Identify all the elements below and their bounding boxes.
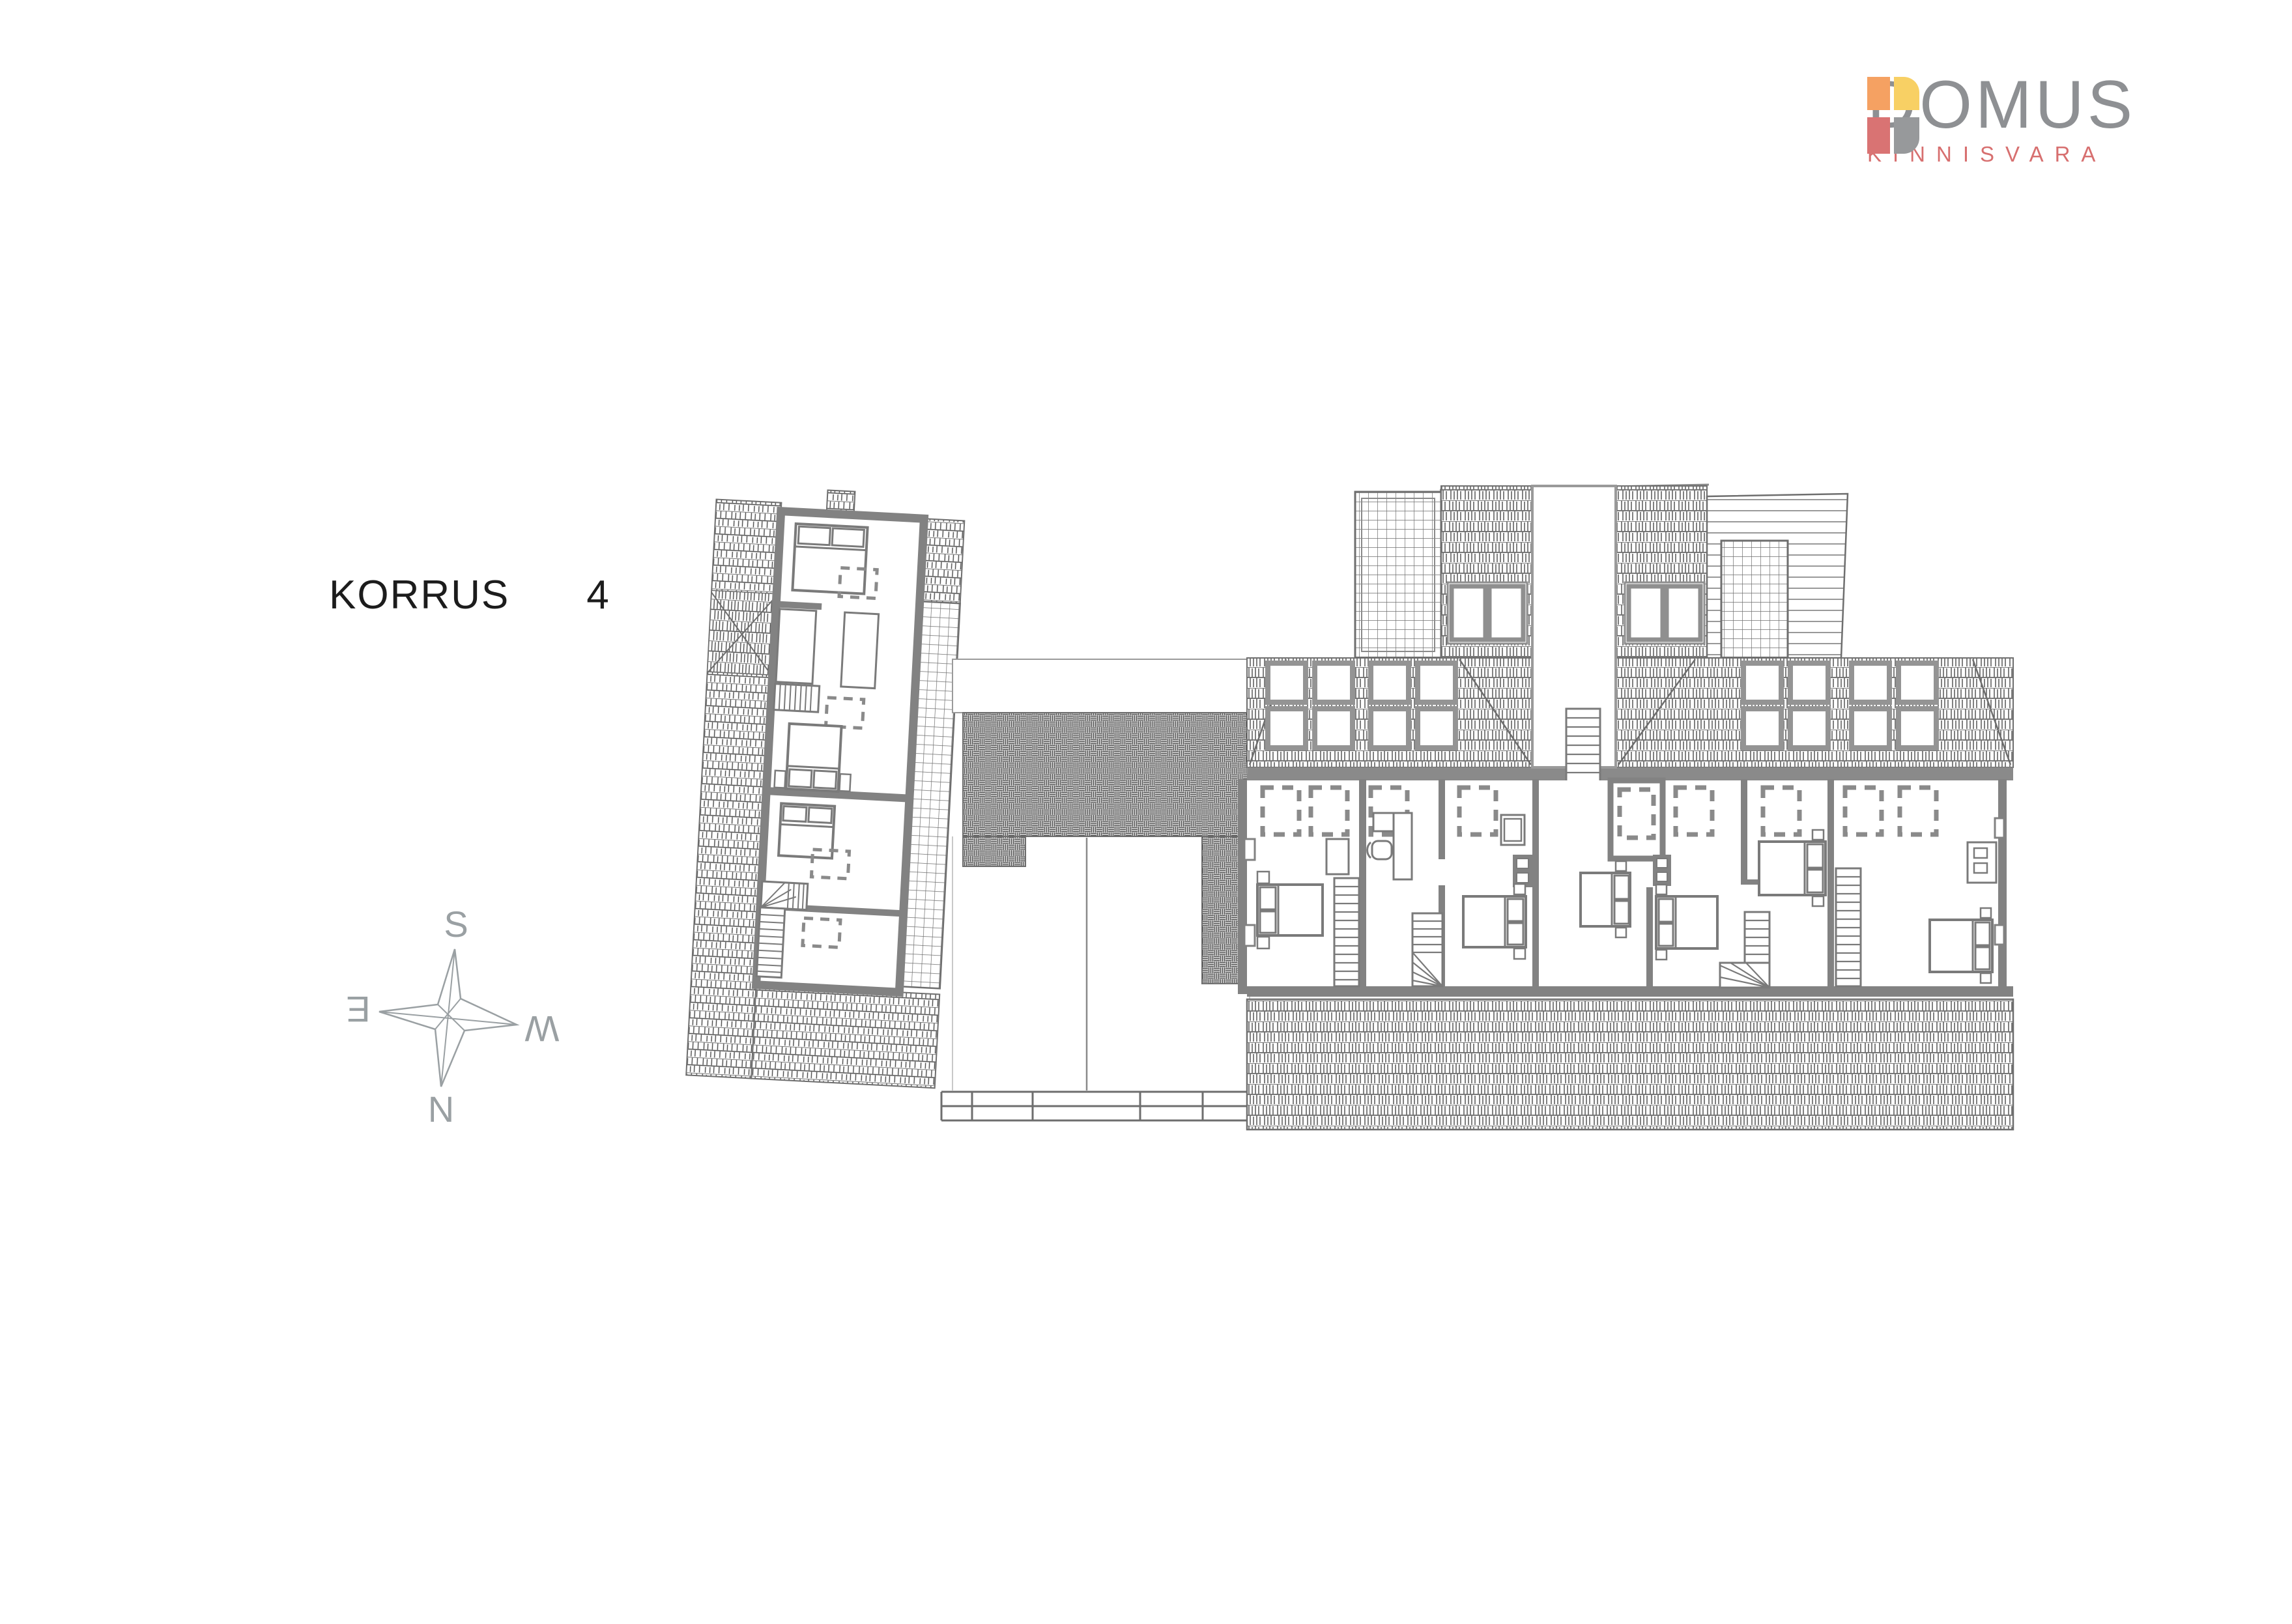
bed	[779, 803, 835, 858]
staircase	[774, 684, 820, 713]
divider-wall	[1439, 779, 1445, 859]
bed	[1759, 842, 1826, 895]
winder-staircase	[1412, 913, 1442, 986]
staircase	[1836, 868, 1861, 986]
armchair	[1501, 815, 1525, 845]
nightstand	[1981, 908, 1991, 918]
nightstand	[1981, 973, 1991, 983]
apartments	[1238, 779, 2013, 997]
nightstand	[1656, 950, 1667, 960]
south-wall	[1247, 986, 2013, 997]
nightstand	[1257, 937, 1269, 948]
nightstand	[1257, 872, 1269, 883]
compass-south-label: S	[444, 904, 468, 945]
divider-wall	[1532, 779, 1539, 986]
nightstand	[1812, 830, 1824, 840]
wing-west-roof-valley	[708, 590, 777, 675]
south-roof-band	[1247, 999, 2013, 1130]
unit-e	[1759, 830, 1826, 906]
left-wing	[686, 485, 966, 1089]
divider-wall	[1359, 779, 1366, 986]
door	[1995, 818, 2004, 838]
terrace-deck	[963, 713, 1250, 836]
divider-wall	[1646, 887, 1653, 986]
compass-west-label: W	[524, 1008, 559, 1049]
connector-terrace	[941, 659, 1250, 1120]
closet	[776, 609, 816, 684]
connector-roof-band	[953, 659, 1250, 713]
closet	[841, 612, 879, 689]
bed	[1257, 885, 1323, 935]
floor-plan-drawing: S N E W	[0, 0, 2292, 1624]
roof-window-pair	[1625, 582, 1704, 644]
door	[1244, 839, 1255, 860]
door	[1244, 925, 1255, 946]
bed	[1930, 920, 1992, 972]
wall-niche	[1513, 855, 1532, 887]
terrace-step	[963, 836, 1025, 866]
west-wall	[1238, 779, 1247, 994]
wing-south-roof	[751, 985, 939, 1089]
balcony-rail	[941, 1092, 1250, 1120]
east-wall	[1998, 779, 2007, 994]
compass-north-label: N	[428, 1089, 454, 1130]
nightstand	[775, 771, 786, 788]
bed	[792, 524, 867, 594]
nightstand	[1514, 948, 1525, 959]
nightstand	[1812, 896, 1824, 906]
page: KORRUS 4 DOMUS KINNISVARA	[0, 0, 2292, 1624]
glass-roof-right	[1721, 541, 1788, 658]
nightstand	[1514, 884, 1525, 894]
door	[1995, 925, 2004, 945]
dresser	[1968, 842, 1996, 883]
nightstand	[839, 774, 850, 791]
bed	[1656, 896, 1717, 948]
divider-wall	[1827, 779, 1834, 986]
side-table	[1326, 839, 1349, 874]
compass-east-label: E	[346, 989, 370, 1030]
roof-window-pair	[1448, 582, 1527, 644]
divider-wall	[1741, 779, 1747, 885]
nightstand	[1656, 885, 1667, 894]
unit-core-left	[1581, 861, 1630, 937]
nightstand	[1616, 861, 1626, 871]
bed	[1581, 873, 1630, 926]
bed	[1463, 896, 1526, 947]
glass-roof-left	[1355, 492, 1441, 658]
bed	[786, 724, 841, 791]
nightstand	[1616, 928, 1626, 937]
terrace-walkway	[1202, 836, 1239, 984]
right-building	[1238, 485, 2013, 1130]
compass-rose: S N E W	[346, 904, 559, 1130]
wall-niche	[1653, 855, 1671, 886]
staircase	[1334, 878, 1359, 986]
sloped-roof-right	[1616, 658, 2013, 767]
sloped-roof-left	[1247, 658, 1532, 767]
